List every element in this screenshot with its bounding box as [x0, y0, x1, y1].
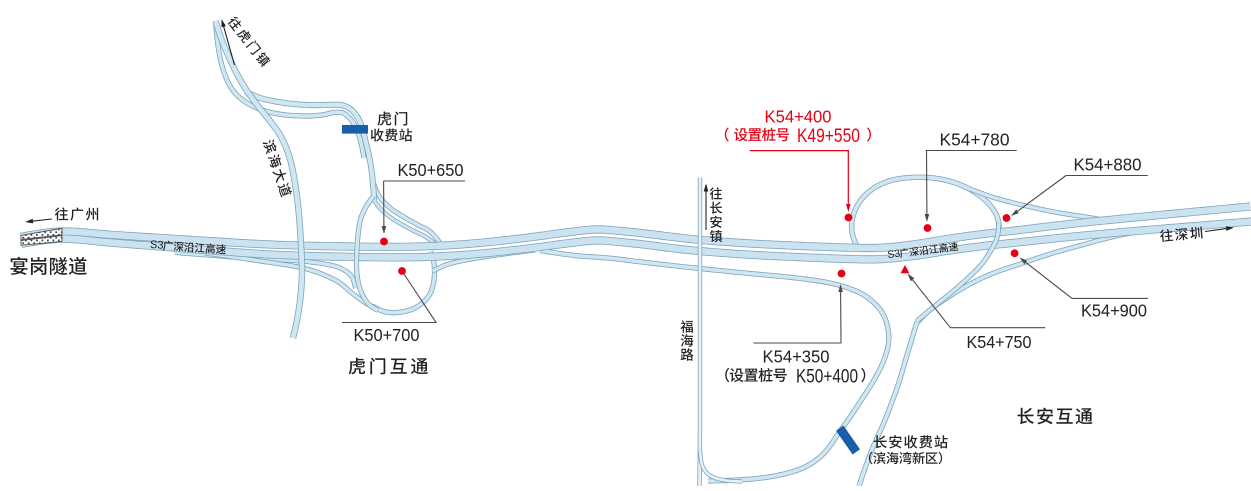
svg-text:K50+650: K50+650: [398, 160, 464, 180]
svg-text:K54+780: K54+780: [940, 130, 1010, 150]
svg-text:K54+400: K54+400: [765, 107, 832, 127]
svg-text:K54+880: K54+880: [1074, 155, 1142, 175]
svg-text:K54+900: K54+900: [1081, 301, 1147, 321]
svg-text:K54+750: K54+750: [967, 332, 1032, 352]
svg-text:S3: S3: [150, 239, 164, 252]
svg-text:S3: S3: [887, 249, 901, 262]
svg-text:K50+400: K50+400: [796, 367, 858, 388]
svg-text:K49+550: K49+550: [797, 126, 860, 147]
svg-text:K50+700: K50+700: [354, 325, 420, 345]
svg-text:K54+350: K54+350: [763, 346, 830, 366]
